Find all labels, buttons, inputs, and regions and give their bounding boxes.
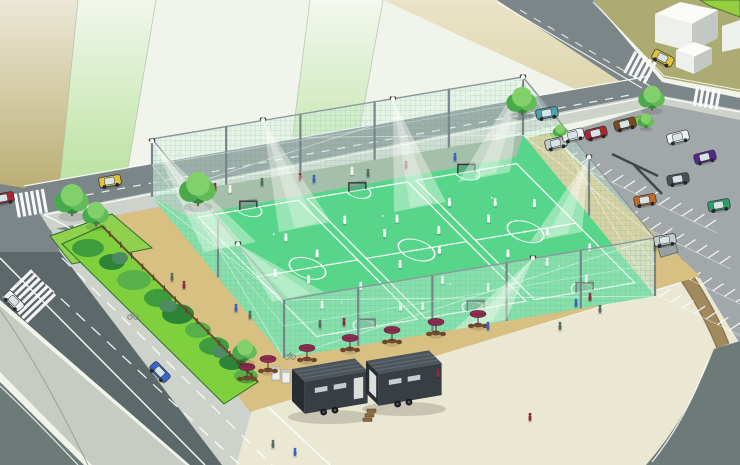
player (316, 252, 319, 257)
cafe-chair (354, 348, 360, 352)
person-head (313, 175, 316, 178)
car-windows (713, 201, 724, 210)
pedestrian (437, 372, 440, 378)
person-head (396, 215, 399, 218)
player (396, 217, 399, 223)
person-head (261, 178, 264, 181)
person-head (494, 198, 497, 201)
person-head (183, 281, 186, 284)
floodlight-glow (236, 242, 240, 246)
pedestrian (319, 323, 322, 329)
person-head (319, 320, 322, 323)
floodlight-glow (150, 139, 154, 143)
person-head (307, 275, 310, 278)
cafe-chair (382, 340, 388, 344)
person-head (249, 311, 252, 314)
player (383, 232, 386, 238)
person-head (359, 282, 362, 285)
cafe-chair (440, 332, 446, 336)
pedestrian (272, 443, 275, 449)
wheel-hub (322, 411, 325, 414)
person-head (507, 249, 510, 252)
player (533, 202, 536, 208)
trailer-door (354, 377, 363, 400)
cafe-chair (251, 377, 257, 381)
car-windows (104, 177, 115, 186)
penalty-mark (273, 233, 275, 235)
step (367, 409, 376, 413)
spectator (351, 170, 354, 176)
player (438, 248, 441, 254)
cafe-chair (340, 348, 346, 352)
tree-canopy (87, 202, 104, 219)
pedestrian (235, 307, 238, 313)
pedestrian (171, 276, 174, 282)
car-windows (541, 109, 552, 118)
tree-canopy (237, 340, 253, 356)
bush (212, 346, 228, 358)
wheel-hub (334, 409, 337, 412)
center-mark (525, 231, 527, 233)
tree-canopy (186, 172, 210, 196)
person-head (575, 299, 578, 302)
person-head (399, 260, 402, 263)
player (448, 201, 451, 207)
pedestrian (343, 321, 346, 327)
person-head (454, 153, 457, 156)
floodlight-glow (261, 118, 265, 122)
food-trailer-left (288, 358, 372, 424)
bush (72, 239, 104, 257)
pedestrian (589, 296, 592, 302)
person-head (272, 440, 275, 443)
illustration-stage (0, 0, 740, 465)
player (399, 263, 402, 269)
player (307, 278, 310, 284)
spectator (313, 178, 316, 184)
tree-canopy (643, 86, 660, 103)
car-windows (659, 236, 670, 245)
person-head (284, 233, 287, 236)
person-head (367, 169, 370, 172)
car-windows (0, 194, 8, 203)
pedestrian (575, 302, 578, 308)
person-head (589, 293, 592, 296)
person-head (351, 167, 354, 170)
cafe-chair (258, 369, 264, 373)
car-windows (639, 196, 650, 205)
player (343, 218, 346, 224)
shadow (288, 410, 372, 424)
spectator (367, 172, 370, 178)
cafe-chair (297, 358, 303, 362)
pedestrian (529, 416, 532, 422)
pedestrian (294, 451, 297, 457)
person-head (229, 185, 232, 188)
bush (117, 270, 151, 290)
person-head (487, 322, 490, 325)
cafe-chair (311, 358, 317, 362)
floodlight-glow (587, 155, 591, 159)
pedestrian (183, 284, 186, 290)
player (506, 252, 509, 257)
cafe-chair (272, 369, 278, 373)
person-head (533, 199, 536, 202)
person-head (599, 305, 602, 308)
wheel-hub (408, 401, 411, 404)
person-head (343, 216, 346, 219)
person-head (343, 318, 346, 321)
pedestrian (249, 314, 252, 320)
vending-machine-top (282, 370, 290, 373)
spectator (229, 188, 232, 194)
pedestrian (487, 325, 490, 331)
bush (159, 300, 177, 312)
step (363, 418, 372, 422)
tree-canopy (61, 184, 83, 206)
pedestrian (599, 308, 602, 314)
floodlight-glow (521, 75, 525, 79)
person-head (448, 198, 451, 201)
person-head (171, 273, 174, 276)
center-mark (416, 249, 418, 251)
tree-canopy (512, 87, 532, 107)
wheel-hub (396, 403, 399, 406)
person-head (437, 369, 440, 372)
floodlight-glow (391, 97, 395, 101)
player (487, 217, 490, 223)
player (494, 201, 497, 207)
step (365, 414, 374, 418)
person-head (529, 413, 532, 416)
player (284, 236, 287, 242)
futsal-facility-aerial-illustration (0, 0, 740, 465)
person-head (235, 304, 238, 307)
player (437, 229, 440, 235)
person-head (437, 226, 440, 229)
spectator (261, 181, 264, 187)
person-head (487, 214, 490, 217)
person-head (383, 229, 386, 232)
center-mark (307, 267, 309, 269)
person-head (588, 243, 591, 246)
food-trailer-right (362, 350, 446, 421)
person-head (294, 448, 297, 451)
bush (112, 252, 128, 264)
tree-canopy (555, 124, 564, 133)
pedestrian (559, 325, 562, 331)
penalty-mark (382, 215, 384, 217)
cafe-chair (426, 332, 432, 336)
cafe-chair (237, 377, 243, 381)
person-head (559, 322, 562, 325)
car-windows (672, 175, 683, 184)
cafe-chair (396, 340, 402, 344)
person-head (316, 249, 319, 252)
spectator (454, 156, 457, 162)
penalty-mark (491, 197, 493, 199)
cafe-chair (468, 324, 474, 328)
person-head (438, 246, 441, 249)
floodlight-glow (531, 256, 535, 260)
tree-canopy (641, 113, 652, 124)
